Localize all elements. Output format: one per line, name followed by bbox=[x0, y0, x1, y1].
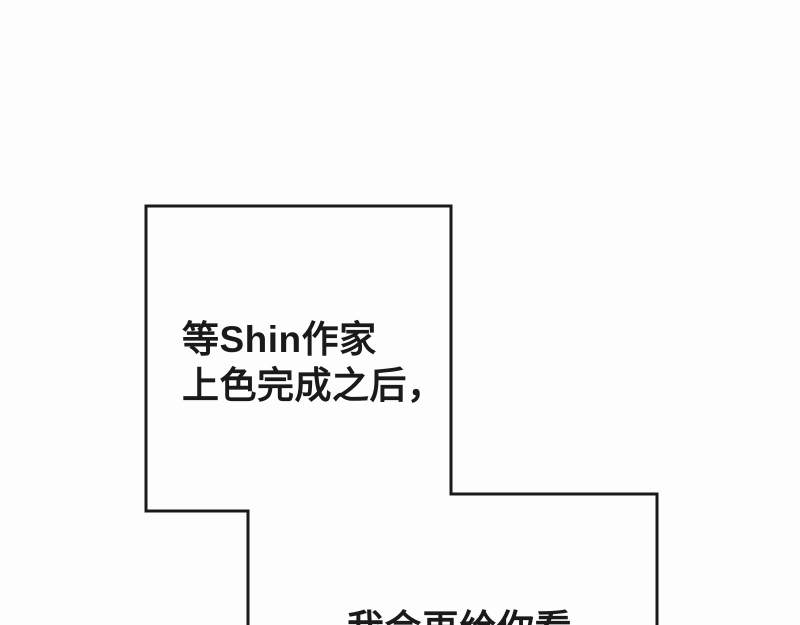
speech-line-1: 等Shin作家 bbox=[182, 317, 445, 363]
speech-line-2: 上色完成之后， bbox=[182, 363, 445, 409]
speech-bubble-outline bbox=[0, 0, 800, 625]
speech-text-clipped: 我会再给你看 bbox=[347, 606, 572, 625]
comic-panel: 等Shin作家 上色完成之后， 我会再给你看 bbox=[0, 0, 800, 625]
speech-text-main: 等Shin作家 上色完成之后， bbox=[182, 317, 445, 409]
speech-bubble-border bbox=[146, 206, 657, 625]
